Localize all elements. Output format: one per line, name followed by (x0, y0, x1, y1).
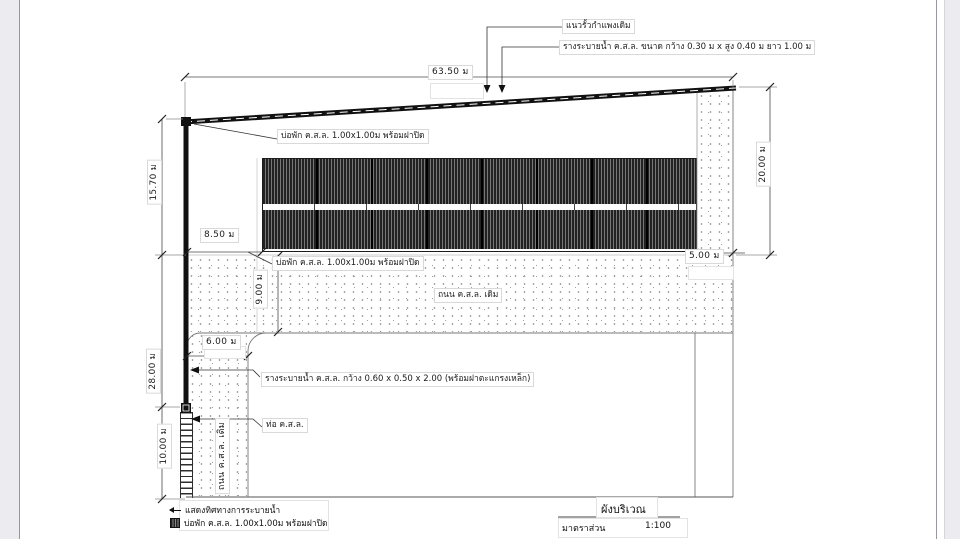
dim-top-width: 63.50 ม (428, 65, 473, 80)
dim-road-width: 9.00 ม (253, 270, 268, 309)
legend-flow-row: แสดงทิศทางการระบายน้ำ (170, 503, 280, 517)
dim-left-lower: 10.00 ม (157, 424, 172, 469)
flow-direction-arrow-icon (170, 507, 181, 514)
dim-offset: 8.50 ม (200, 228, 239, 243)
ghost-box (688, 266, 734, 280)
manhole-symbol-icon (170, 518, 180, 528)
scale-label: มาตราส่วน (562, 521, 605, 535)
dim-right-strip: 5.00 ม (685, 249, 724, 264)
dim-right-height: 20.00 ม (756, 142, 771, 187)
leader-lines (191, 27, 562, 427)
drain-channel (181, 117, 191, 413)
existing-road-vertical-label: ถนน ค.ส.ล. เดิม (215, 418, 230, 494)
top-drain-callout: รางระบายน้ำ ค.ส.ล. ขนาด กว้าง 0.30 ม x ส… (559, 40, 815, 55)
drawing-title: ผังบริเวณ (601, 500, 646, 518)
manhole-marker-bottom (181, 403, 191, 413)
existing-road-label: ถนน ค.ส.ล. เดิม (434, 288, 502, 303)
manhole-marker-top (181, 117, 191, 126)
linework-layer (0, 0, 960, 539)
pipe-callout: ท่อ ค.ส.ล. (262, 418, 308, 433)
manhole-callout-mid: บ่อพัก ค.ส.ล. 1.00x1.00ม พร้อมฝาปิด (272, 256, 424, 271)
dim-left-upper: 15.70 ม (147, 160, 162, 205)
manhole-callout-top: บ่อพัก ค.ส.ล. 1.00x1.00ม พร้อมฝาปิด (277, 129, 429, 144)
site-plan-page: แนวรั้วกำแพงเดิม รางระบายน้ำ ค.ส.ล. ขนาด… (0, 0, 960, 539)
legend-manhole-row: บ่อพัก ค.ส.ล. 1.00x1.00ม พร้อมฝาปิด (170, 516, 328, 530)
legend-manhole-label: บ่อพัก ค.ส.ล. 1.00x1.00ม พร้อมฝาปิด (184, 516, 328, 530)
dim-left-mid: 28.00 ม (146, 349, 161, 394)
side-drain-callout: รางระบายน้ำ ค.ส.ล. กว้าง 0.60 x 0.50 x 2… (261, 372, 534, 387)
fence-callout: แนวรั้วกำแพงเดิม (562, 19, 635, 34)
scale-value: 1:100 (645, 521, 671, 531)
ghost-box (430, 83, 484, 99)
dim-entrance-width: 6.00 ม (202, 335, 241, 350)
legend-flow-label: แสดงทิศทางการระบายน้ำ (185, 503, 280, 517)
